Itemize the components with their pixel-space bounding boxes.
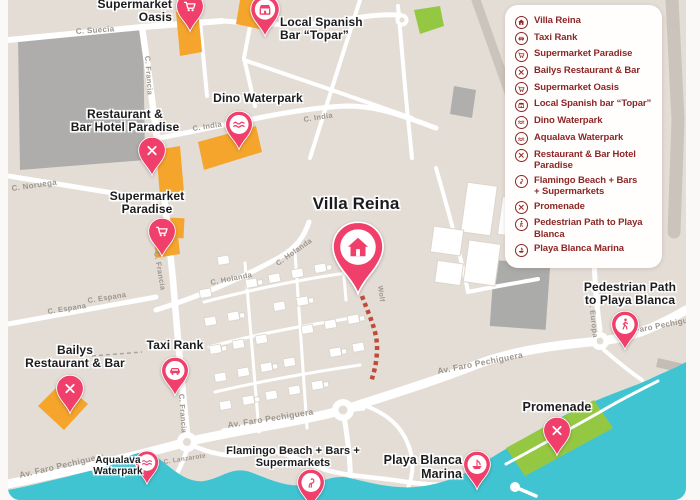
legend-item-label: Supermarket Paradise bbox=[534, 48, 632, 59]
cart-icon bbox=[515, 82, 528, 95]
legend-item-label: Local Spanish bar “Topar” bbox=[534, 98, 651, 109]
map-label-restaurant-bar-hotel-paradise: Restaurant &Bar Hotel Paradise bbox=[71, 108, 180, 135]
walk-icon bbox=[515, 218, 528, 231]
map-pin-restaurant-bar-hotel-paradise[interactable] bbox=[137, 136, 167, 177]
map-label-flamingo-beach: Flamingo Beach + Bars +Supermarkets bbox=[226, 445, 360, 470]
legend-item-flamingo-beach-bars: Flamingo Beach + Bars+ Supermarkets bbox=[515, 175, 657, 198]
legend-item-label: Villa Reina bbox=[534, 15, 581, 26]
legend-item-aqualava-waterpark: Aqualava Waterpark bbox=[515, 132, 657, 146]
shop-icon bbox=[515, 99, 528, 112]
legend-item-label: Flamingo Beach + Bars+ Supermarkets bbox=[534, 175, 637, 198]
map-label-supermarket-oasis: SupermarketOasis bbox=[98, 0, 172, 25]
legend-item-promenade: Promenade bbox=[515, 201, 657, 215]
legend-item-pedestrian-path-to-playa: Pedestrian Path to PlayaBlanca bbox=[515, 217, 657, 240]
legend-item-label: Supermarket Oasis bbox=[534, 82, 619, 93]
legend-item-restaurant-bar-hotel: Restaurant & Bar HotelParadise bbox=[515, 149, 657, 172]
map-pin-bailys-restaurant-bar[interactable] bbox=[55, 374, 85, 415]
map-pin-pedestrian-path[interactable] bbox=[610, 310, 640, 351]
map-pin-dino-waterpark[interactable] bbox=[224, 110, 254, 151]
utensils-icon bbox=[515, 66, 528, 79]
car-icon bbox=[515, 32, 528, 45]
map-label-aqualava-waterpark: AqualavaWaterpark bbox=[93, 455, 142, 477]
legend-item-label: Dino Waterpark bbox=[534, 115, 602, 126]
map[interactable]: C. SueciaC. FranciaC. IndiaC. IndiaC. No… bbox=[8, 0, 686, 500]
legend-card: Villa ReinaTaxi RankSupermarket Paradise… bbox=[505, 5, 662, 268]
legend-item-label: Bailys Restaurant & Bar bbox=[534, 65, 640, 76]
legend-item-supermarket-paradise: Supermarket Paradise bbox=[515, 48, 657, 62]
flamingo-icon bbox=[515, 175, 528, 188]
map-pin-local-spanish-bar-topar[interactable] bbox=[249, 0, 281, 38]
map-label-villa-reina: Villa Reina bbox=[313, 194, 400, 213]
legend-items: Villa ReinaTaxi RankSupermarket Paradise… bbox=[515, 15, 657, 257]
map-label-pedestrian-path: Pedestrian Pathto Playa Blanca bbox=[584, 281, 676, 308]
utensils-icon bbox=[515, 149, 528, 162]
legend-item-label: Pedestrian Path to PlayaBlanca bbox=[534, 217, 642, 240]
map-label-supermarket-paradise: SupermarketParadise bbox=[110, 190, 184, 217]
map-pin-flamingo-beach[interactable] bbox=[296, 468, 326, 500]
legend-item-villa-reina: Villa Reina bbox=[515, 15, 657, 29]
utensils-icon bbox=[515, 201, 528, 214]
map-label-dino-waterpark: Dino Waterpark bbox=[213, 92, 303, 105]
map-label-bailys-restaurant-bar: BailysRestaurant & Bar bbox=[25, 344, 125, 371]
legend-item-playa-blanca-marina: Playa Blanca Marina bbox=[515, 243, 657, 257]
map-pin-playa-blanca-marina[interactable] bbox=[462, 450, 492, 491]
legend-item-label: Restaurant & Bar HotelParadise bbox=[534, 149, 636, 172]
legend-item-label: Playa Blanca Marina bbox=[534, 243, 624, 254]
map-pin-taxi-rank[interactable] bbox=[160, 356, 190, 397]
map-pin-villa-reina[interactable] bbox=[330, 220, 386, 296]
wave-icon bbox=[515, 132, 528, 145]
wave-icon bbox=[515, 116, 528, 129]
map-label-playa-blanca-marina: Playa BlancaMarina bbox=[384, 453, 462, 481]
ship-icon bbox=[515, 244, 528, 257]
legend-item-label: Taxi Rank bbox=[534, 32, 577, 43]
legend-item-local-spanish-bar-topar-: Local Spanish bar “Topar” bbox=[515, 98, 657, 112]
legend-item-taxi-rank: Taxi Rank bbox=[515, 32, 657, 46]
map-label-promenade: Promenade bbox=[523, 400, 592, 414]
map-pin-promenade[interactable] bbox=[542, 416, 572, 457]
map-label-taxi-rank: Taxi Rank bbox=[147, 339, 204, 352]
legend-item-bailys-restaurant-bar: Bailys Restaurant & Bar bbox=[515, 65, 657, 79]
home-icon bbox=[515, 16, 528, 29]
cart-icon bbox=[515, 49, 528, 62]
legend-item-label: Promenade bbox=[534, 201, 585, 212]
legend-item-dino-waterpark: Dino Waterpark bbox=[515, 115, 657, 129]
legend-item-label: Aqualava Waterpark bbox=[534, 132, 623, 143]
map-pin-supermarket-paradise[interactable] bbox=[147, 217, 177, 258]
map-pin-supermarket-oasis[interactable] bbox=[175, 0, 205, 33]
legend-item-supermarket-oasis: Supermarket Oasis bbox=[515, 82, 657, 96]
map-label-local-spanish-bar-topar: Local SpanishBar “Topar” bbox=[280, 16, 363, 43]
